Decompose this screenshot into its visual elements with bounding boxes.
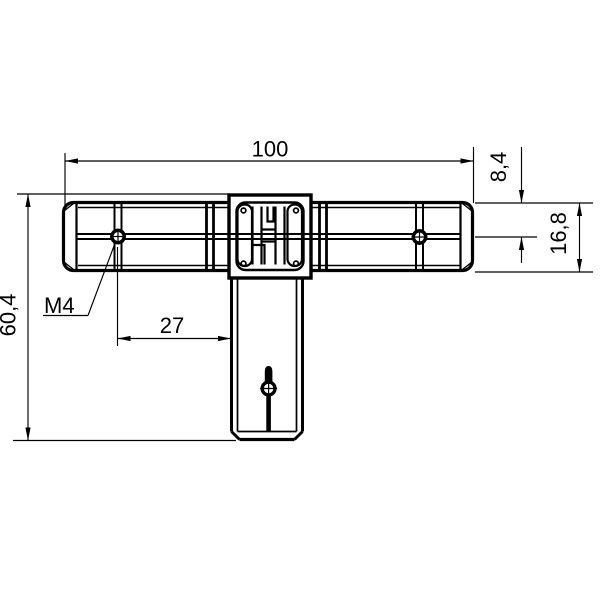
extension-lines — [475, 203, 593, 237]
arrowhead-up — [519, 237, 524, 250]
arrowhead-right — [218, 336, 231, 341]
arrowhead-left — [118, 336, 131, 341]
technical-drawing-canvas: 100 8,4 16,8 60,4 27 M4 — [0, 0, 600, 600]
vertical-profile-arm — [232, 279, 303, 440]
hole-crosshair — [260, 380, 277, 397]
arrowhead-left — [65, 158, 78, 163]
drawing-page: 100 8,4 16,8 60,4 27 M4 — [0, 0, 600, 600]
dim-hole-offset: 8,4 — [475, 147, 593, 263]
arrowhead-down — [25, 428, 30, 441]
screw-hole-bottom — [260, 380, 277, 397]
arrowhead-right — [461, 158, 474, 163]
dim-label-overall-height: 60,4 — [0, 294, 21, 337]
dim-label-overall-length: 100 — [252, 137, 289, 162]
arrowhead-down — [519, 190, 524, 203]
arrowhead-up — [25, 194, 30, 207]
arrowhead-down — [577, 259, 582, 272]
dim-label-profile-height: 16,8 — [546, 212, 571, 255]
arrowhead-up — [577, 203, 582, 216]
thread-label: M4 — [44, 293, 75, 318]
dim-label-hole-spacing: 27 — [160, 313, 184, 338]
connector-center-block — [229, 195, 311, 278]
dim-label-hole-offset: 8,4 — [486, 152, 511, 183]
